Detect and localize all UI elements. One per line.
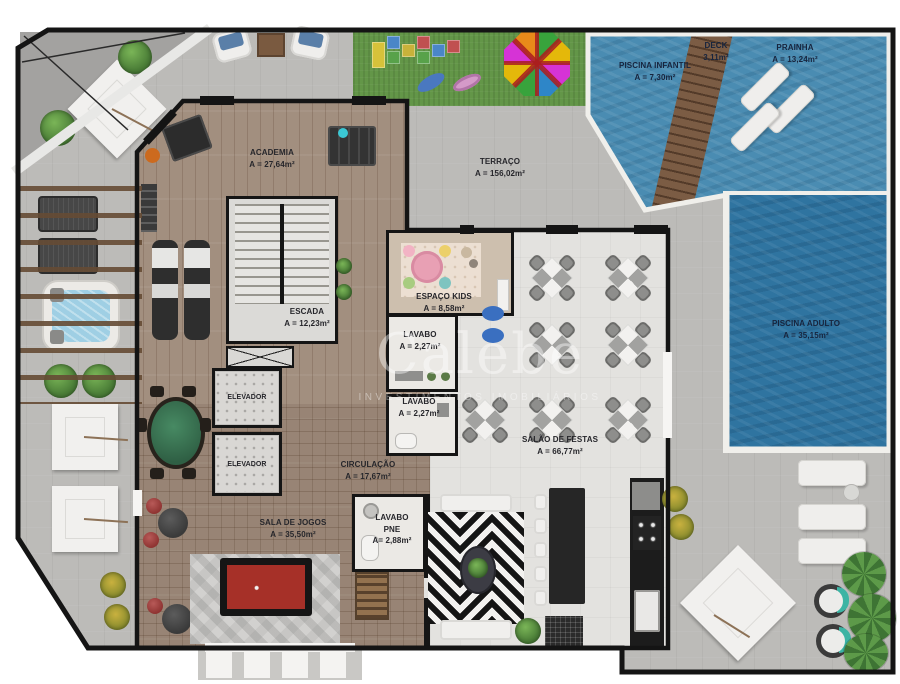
poker-table: [147, 397, 205, 469]
room-label-espaco-kids: ESPAÇO KIDSA = 8,58m²: [416, 291, 472, 314]
room-area: A = 17,67m²: [341, 471, 396, 483]
room-name: ELEVADOR: [227, 459, 266, 471]
sun-lounger: [798, 460, 866, 486]
pouf: [143, 532, 159, 548]
dining-table-set: [529, 322, 575, 368]
room-area: A = 13,24m²: [772, 54, 818, 66]
plant: [82, 364, 116, 398]
room-name: CIRCULAÇÃO: [341, 459, 396, 471]
room-label-salao-de-festas: SALÃO DE FESTASA = 66,77m²: [522, 434, 598, 457]
hopscotch-tile: [372, 42, 385, 68]
room-label-lavabo-2: LAVABOA = 2,27m²: [399, 396, 440, 419]
poker-chair: [136, 418, 147, 432]
room-name: LAVABO: [399, 396, 440, 408]
room-label-lavabo-pne: LAVABOPNEA= 2,88m²: [373, 512, 412, 547]
dining-chair: [534, 590, 547, 606]
poker-chair: [150, 468, 164, 479]
hopscotch-tile: [387, 51, 400, 64]
room-area: A = 35,15m²: [772, 330, 840, 342]
room-name: PISCINA ADULTO: [772, 318, 840, 330]
room-label-escada: ESCADAA = 12,23m²: [284, 306, 330, 329]
stair-flight: [235, 204, 280, 304]
rug-band: [428, 512, 460, 624]
room-name: ESCADA: [284, 306, 330, 318]
relax-lounger: [152, 240, 178, 340]
room-name: SALÃO DE FESTAS: [522, 434, 598, 446]
dining-table-set: [605, 322, 651, 368]
kitchen-appliance: [632, 482, 660, 510]
kids-chair: [439, 277, 451, 289]
kids-pouf: [482, 306, 504, 321]
coffee-table: [257, 33, 285, 57]
room-label-prainha: PRAINHAA = 13,24m²: [772, 42, 818, 65]
dining-chair: [534, 566, 547, 582]
room-area: A = 12,23m²: [284, 318, 330, 330]
step: [206, 652, 232, 678]
room-name: DECK: [703, 40, 729, 52]
room-name: LAVABO: [400, 329, 441, 341]
dining-table-set: [462, 397, 508, 443]
dining-chair: [534, 542, 547, 558]
room-label-piscina-infantil: PISCINA INFANTILA = 7,30m²: [619, 60, 691, 83]
room-label-academia: ACADEMIAA = 27,64m²: [249, 147, 295, 170]
gym-machine: [328, 126, 376, 166]
plant: [662, 486, 688, 512]
kids-pouf: [482, 328, 504, 343]
pouf: [146, 498, 162, 514]
dining-chair: [534, 518, 547, 534]
kids-chair: [403, 277, 415, 289]
poker-chair: [200, 418, 211, 432]
room-name: ESPAÇO KIDS: [416, 291, 472, 303]
step: [282, 652, 308, 678]
kids-chair: [439, 245, 451, 257]
room-label-sala-de-jogos: SALA DE JOGOSA = 35,50m²: [260, 517, 327, 540]
room-label-terraco: TERRAÇOA = 156,02m²: [475, 156, 525, 179]
pergola-lounger: [38, 196, 98, 232]
sun-lounger: [798, 504, 866, 530]
relax-lounger: [184, 240, 210, 340]
room-name: ACADEMIA: [249, 147, 295, 159]
palm-plant: [844, 634, 888, 672]
foosball-table: [355, 572, 389, 620]
room-area: A= 2,88m²: [373, 535, 412, 547]
palm-plant: [842, 552, 886, 596]
pool-table-felt: [227, 565, 305, 609]
plant: [40, 110, 76, 146]
gym-ball: [338, 128, 348, 138]
hopscotch-tile: [432, 44, 445, 57]
dumbbell-rack: [141, 184, 157, 232]
hot-tub-seat: [50, 330, 64, 344]
plant: [118, 40, 152, 74]
entry-steps: [198, 648, 362, 680]
room-area: 3,11m²: [703, 52, 729, 64]
room-label-elevador-1: ELEVADOR: [227, 392, 266, 404]
plant: [668, 514, 694, 540]
plant: [515, 618, 541, 644]
pouf: [147, 598, 163, 614]
room-name: ELEVADOR: [227, 392, 266, 404]
kids-chair: [403, 245, 415, 257]
step: [244, 652, 270, 678]
rug-band: [492, 512, 524, 624]
plant-pot: [427, 372, 436, 381]
lavabo-1: [386, 314, 458, 392]
plant-pot: [441, 372, 450, 381]
sofa: [440, 494, 512, 512]
doormat: [545, 616, 583, 648]
room-label-deck: DECK3,11m²: [703, 40, 729, 63]
poker-chair: [182, 386, 196, 397]
room-area: A = 27,64m²: [249, 159, 295, 171]
room-area: A = 2,27m²: [400, 341, 441, 353]
dining-table-set: [605, 255, 651, 301]
room-label-circulacao: CIRCULAÇÃOA = 17,67m²: [341, 459, 396, 482]
hopscotch-tile: [402, 44, 415, 57]
side-table: [843, 484, 860, 501]
room-area: A = 8,58m²: [416, 303, 472, 315]
stair-flight: [284, 204, 329, 304]
dining-table-set: [529, 255, 575, 301]
kids-table: [411, 251, 443, 283]
room-area: A = 7,30m²: [619, 72, 691, 84]
room-label-piscina-adulto: PISCINA ADULTOA = 35,15m²: [772, 318, 840, 341]
shaft-void: [226, 346, 294, 368]
plant: [104, 604, 130, 630]
pouf: [162, 604, 192, 634]
pergola-lounger: [38, 238, 98, 274]
dining-table-set: [605, 397, 651, 443]
exercise-ball: [145, 148, 160, 163]
hot-tub: [42, 280, 120, 352]
long-dining-table: [549, 488, 585, 604]
round-chair: [814, 584, 848, 618]
room-name: PNE: [373, 524, 412, 536]
room-area: A = 35,50m²: [260, 529, 327, 541]
toy: [469, 259, 478, 268]
toy: [461, 247, 472, 258]
hopscotch-tile: [387, 36, 400, 49]
floor-plan: ACADEMIAA = 27,64m² TERRAÇOA = 156,02m² …: [0, 0, 900, 684]
step: [320, 652, 346, 678]
room-name: PISCINA INFANTIL: [619, 60, 691, 72]
hopscotch-tile: [417, 51, 430, 64]
room-label-lavabo-1: LAVABOA = 2,27m²: [400, 329, 441, 352]
poker-chair: [150, 386, 164, 397]
toilet: [395, 433, 417, 449]
room-name: PRAINHA: [772, 42, 818, 54]
room-area: A = 66,77m²: [522, 446, 598, 458]
hopscotch-tile: [447, 40, 460, 53]
plant: [336, 258, 352, 274]
pool-table-frame: [220, 558, 312, 616]
pouf: [158, 508, 188, 538]
sink-counter: [395, 371, 423, 381]
stove: [633, 516, 661, 550]
sofa: [440, 620, 512, 640]
room-name: TERRAÇO: [475, 156, 525, 168]
poker-chair: [182, 468, 196, 479]
room-name: LAVABO: [373, 512, 412, 524]
table-plant: [468, 558, 488, 578]
dining-chair: [534, 494, 547, 510]
room-area: A = 156,02m²: [475, 168, 525, 180]
kitchen-sink: [634, 590, 660, 632]
hopscotch-tile: [417, 36, 430, 49]
plant: [336, 284, 352, 300]
playground-carousel: [504, 30, 570, 96]
plant: [100, 572, 126, 598]
room-name: SALA DE JOGOS: [260, 517, 327, 529]
hot-tub-seat: [50, 288, 64, 302]
room-label-elevador-2: ELEVADOR: [227, 459, 266, 471]
room-area: A = 2,27m²: [399, 408, 440, 420]
plant: [44, 364, 78, 398]
